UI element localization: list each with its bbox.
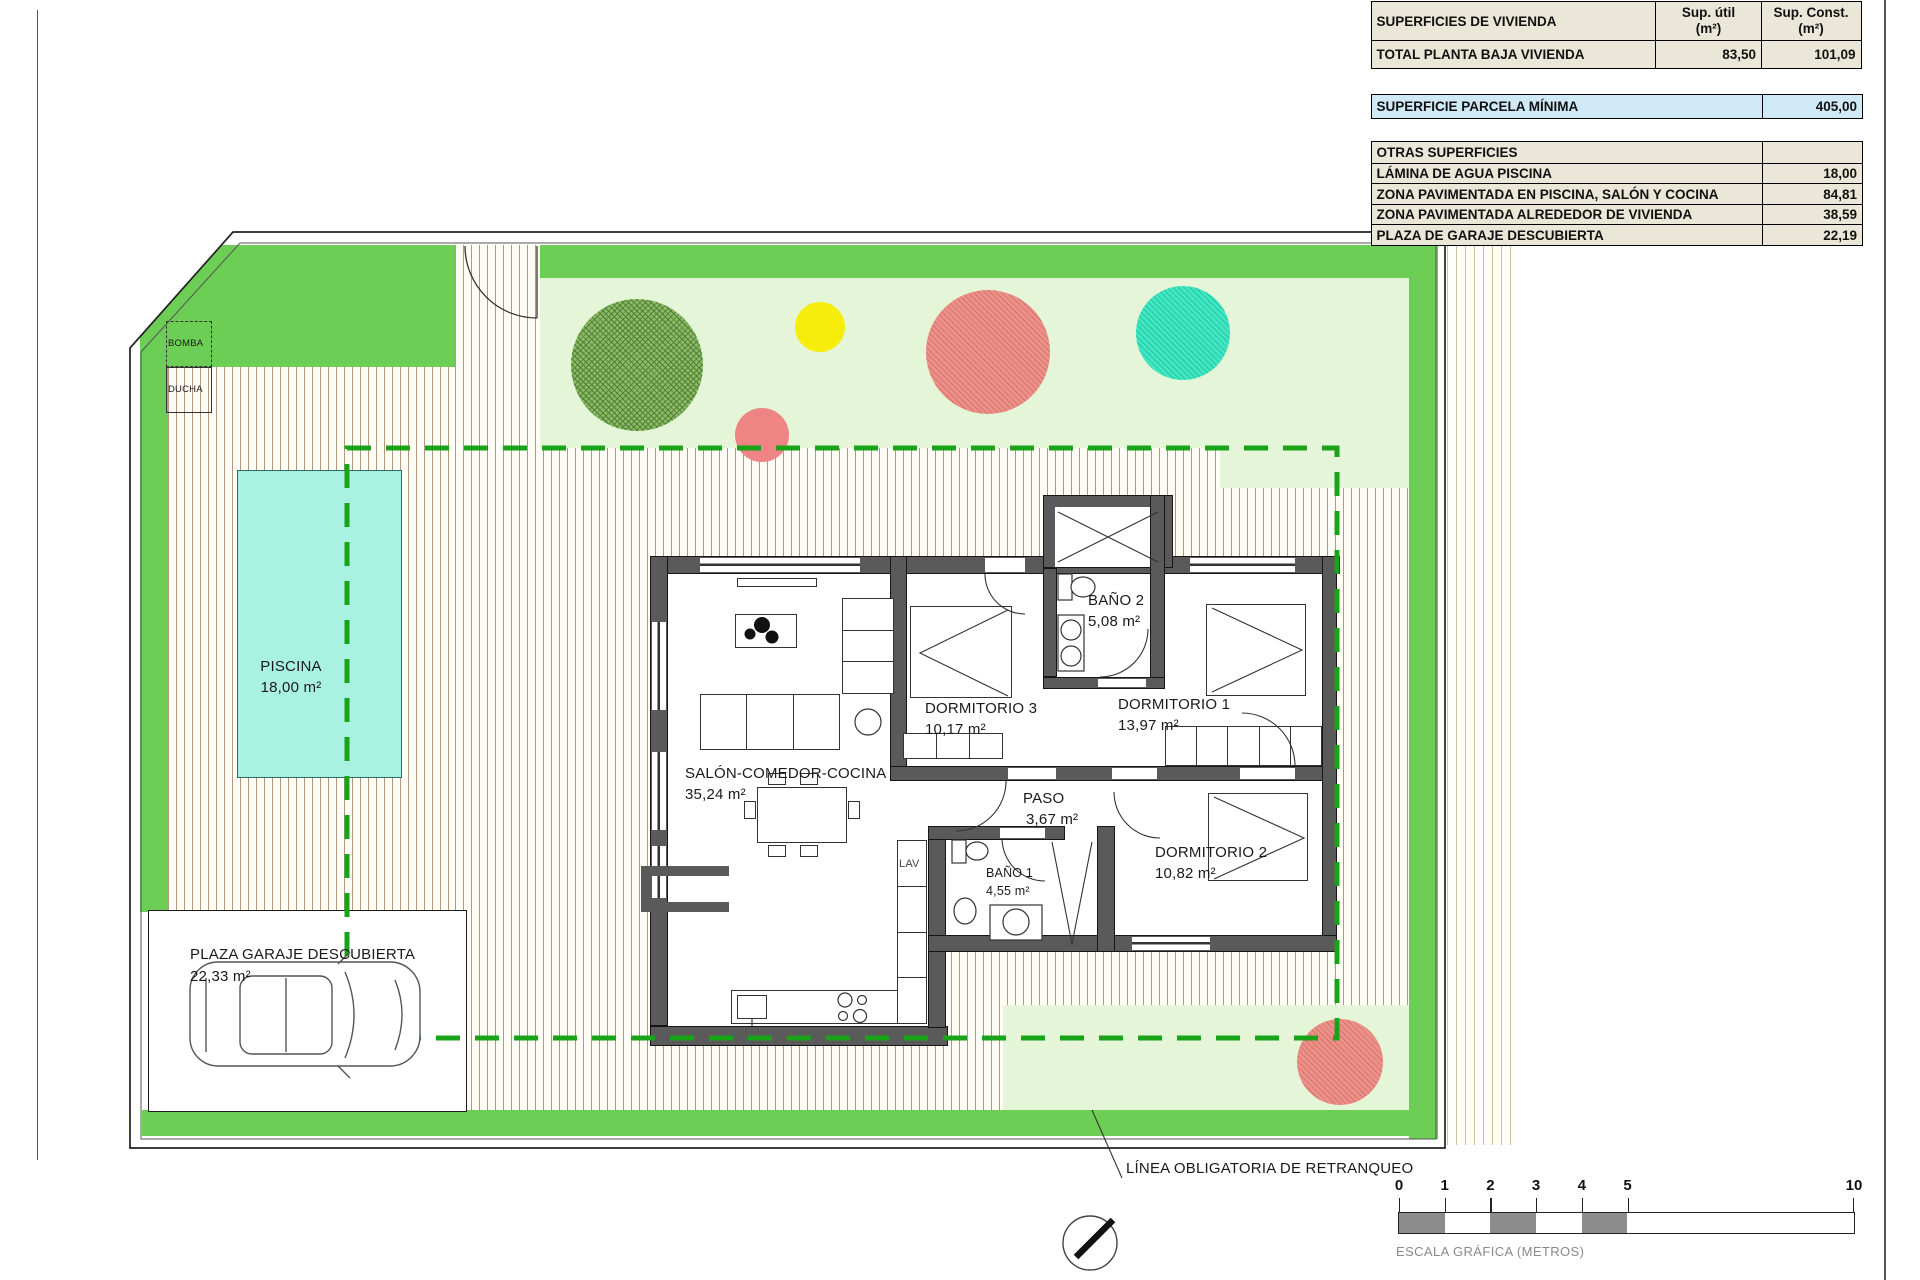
room-area-dorm2: 10,82 m² [1155,865,1216,882]
garage-area-label: 22,33 m² [190,968,251,985]
scale-tick [1399,1198,1400,1213]
room-area-bano2: 5,08 m² [1088,613,1140,630]
table-row: LÁMINA DE AGUA PISCINA 18,00 [1372,164,1866,185]
room-area-paso: 3,67 m² [1026,811,1078,828]
col-header-const: Sup. Const. (m²) [1761,1,1862,42]
col-const-line2: (m²) [1798,21,1824,37]
parcela-value: 405,00 [1762,94,1863,119]
otras-row-value: 38,59 [1762,204,1863,226]
scale-number: 4 [1567,1177,1597,1194]
room-label-dorm2: DORMITORIO 2 [1155,844,1267,861]
surfaces-table: SUPERFICIES DE VIVIENDA Sup. útil (m²) S… [1372,2,1866,246]
leader-line [1092,1110,1122,1178]
scale-tick [1582,1198,1583,1213]
pump-label: BOMBA [168,338,203,349]
setback-label: LÍNEA OBLIGATORIA DE RETRANQUEO [1126,1160,1413,1177]
col-util-line2: (m²) [1696,21,1722,37]
table-title: SUPERFICIES DE VIVIENDA [1371,1,1657,42]
col-util-line1: Sup. útil [1682,5,1735,21]
otras-row-label: LÁMINA DE AGUA PISCINA [1371,163,1764,185]
round-table [855,709,881,735]
hob-icon [752,993,867,1028]
total-util: 83,50 [1655,40,1762,69]
scale-bar-label: ESCALA GRÁFICA (METROS) [1396,1244,1584,1259]
otras-row-label: ZONA PAVIMENTADA ALREDEDOR DE VIVIENDA [1371,204,1764,226]
otras-title: OTRAS SUPERFICIES [1371,141,1764,164]
scale-tick [1536,1198,1537,1213]
site-plan-sheet: SALÓN-COMEDOR-COCINA 35,24 m² DORMITORIO… [0,0,1920,1280]
otras-row-value: 22,19 [1762,224,1863,246]
room-label-salon: SALÓN-COMEDOR-COCINA [685,765,887,782]
scale-tick [1490,1198,1491,1213]
scale-tick [1853,1198,1854,1213]
parcela-label: SUPERFICIE PARCELA MÍNIMA [1371,94,1764,119]
scale-segment [1490,1213,1536,1233]
col-header-util: Sup. útil (m²) [1655,1,1762,42]
scale-bar: 0 1 2 3 4 5 10 [1398,1212,1855,1234]
col-const-line1: Sup. Const. [1774,5,1849,21]
scale-tick [1628,1198,1629,1213]
north-arrow-icon [1063,1216,1117,1270]
otras-row-label: PLAZA DE GARAJE DESCUBIERTA [1371,224,1764,246]
table-row: ZONA PAVIMENTADA EN PISCINA, SALÓN Y COC… [1372,185,1866,206]
pool-label: PISCINA [206,658,376,675]
room-label-dorm3: DORMITORIO 3 [925,700,1037,717]
shower-label: DUCHA [168,384,203,395]
table-row: ZONA PAVIMENTADA ALREDEDOR DE VIVIENDA 3… [1372,205,1866,226]
scale-number: 2 [1475,1177,1505,1194]
table-parcela-row: SUPERFICIE PARCELA MÍNIMA 405,00 [1372,95,1866,119]
scale-number: 10 [1839,1177,1869,1194]
room-area-dorm1: 13,97 m² [1118,717,1179,734]
room-label-bano1: BAÑO 1 [986,866,1033,880]
scale-number: 1 [1430,1177,1460,1194]
gate-door-arc [465,246,537,318]
otras-row-value: 84,81 [1762,183,1863,205]
room-label-paso: PASO [1023,790,1064,807]
table-header-row: SUPERFICIES DE VIVIENDA Sup. útil (m²) S… [1372,2,1866,42]
garage-label: PLAZA GARAJE DESCUBIERTA [190,946,415,963]
scale-tick [1445,1198,1446,1213]
pool-area-label: 18,00 m² [206,679,376,696]
scale-number: 0 [1384,1177,1414,1194]
otras-empty [1762,141,1863,164]
table-total-row: TOTAL PLANTA BAJA VIVIENDA 83,50 101,09 [1372,42,1866,70]
table-row: PLAZA DE GARAJE DESCUBIERTA 22,19 [1372,226,1866,247]
room-label-bano2: BAÑO 2 [1088,592,1144,609]
room-area-salon: 35,24 m² [685,786,746,803]
plant-icon [745,617,779,644]
room-label-dorm1: DORMITORIO 1 [1118,696,1230,713]
room-area-dorm3: 10,17 m² [925,721,986,738]
otras-row-value: 18,00 [1762,163,1863,185]
otras-row-label: ZONA PAVIMENTADA EN PISCINA, SALÓN Y COC… [1371,183,1764,205]
room-area-bano1: 4,55 m² [986,884,1030,898]
table-otras-header: OTRAS SUPERFICIES [1372,143,1866,165]
room-label-lav: LAV [899,858,920,870]
scale-number: 3 [1521,1177,1551,1194]
total-const: 101,09 [1761,40,1862,69]
scale-segment [1399,1213,1445,1233]
scale-segment [1582,1213,1628,1233]
scale-number: 5 [1613,1177,1643,1194]
setback-dashed-line [347,448,1337,1038]
total-label: TOTAL PLANTA BAJA VIVIENDA [1371,40,1657,69]
